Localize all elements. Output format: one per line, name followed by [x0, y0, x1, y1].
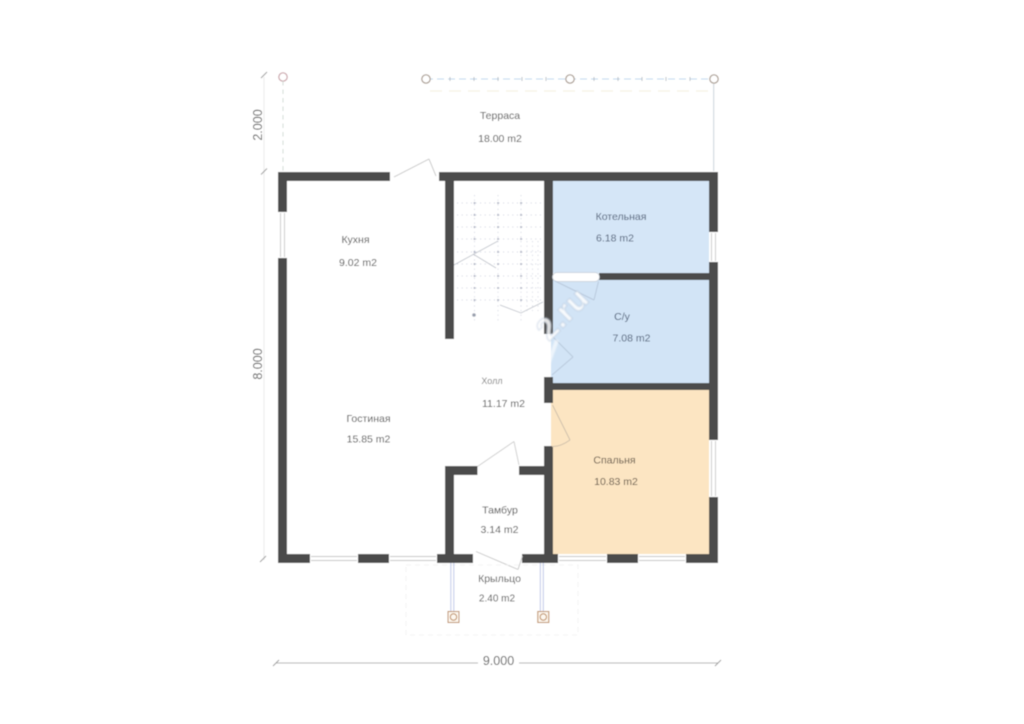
svg-text:Терраса: Терраса [480, 110, 520, 122]
svg-text:7.08 m2: 7.08 m2 [613, 333, 651, 345]
svg-text:10.83 m2: 10.83 m2 [594, 476, 638, 488]
svg-text:2.40 m2: 2.40 m2 [479, 594, 516, 605]
svg-text:Котельная: Котельная [596, 211, 647, 223]
svg-text:6.18 m2: 6.18 m2 [596, 233, 634, 245]
svg-text:Кухня: Кухня [341, 234, 369, 246]
svg-text:Гостиная: Гостиная [346, 413, 390, 425]
svg-text:18.00 m2: 18.00 m2 [478, 133, 522, 145]
svg-text:9.000: 9.000 [483, 654, 514, 668]
svg-text:11.17 m2: 11.17 m2 [482, 398, 525, 410]
svg-text:Крыльцо: Крыльцо [478, 573, 521, 585]
svg-text:Тамбур: Тамбур [482, 505, 518, 517]
svg-text:3.14 m2: 3.14 m2 [481, 524, 519, 536]
svg-text:8.000: 8.000 [251, 348, 265, 379]
svg-text:2.000: 2.000 [251, 109, 265, 140]
svg-text:Холл: Холл [481, 376, 502, 386]
svg-text:15.85 m2: 15.85 m2 [347, 434, 391, 446]
svg-text:9.02 m2: 9.02 m2 [339, 257, 377, 269]
svg-text:Спальня: Спальня [593, 455, 635, 467]
svg-text:С/у: С/у [614, 311, 631, 323]
